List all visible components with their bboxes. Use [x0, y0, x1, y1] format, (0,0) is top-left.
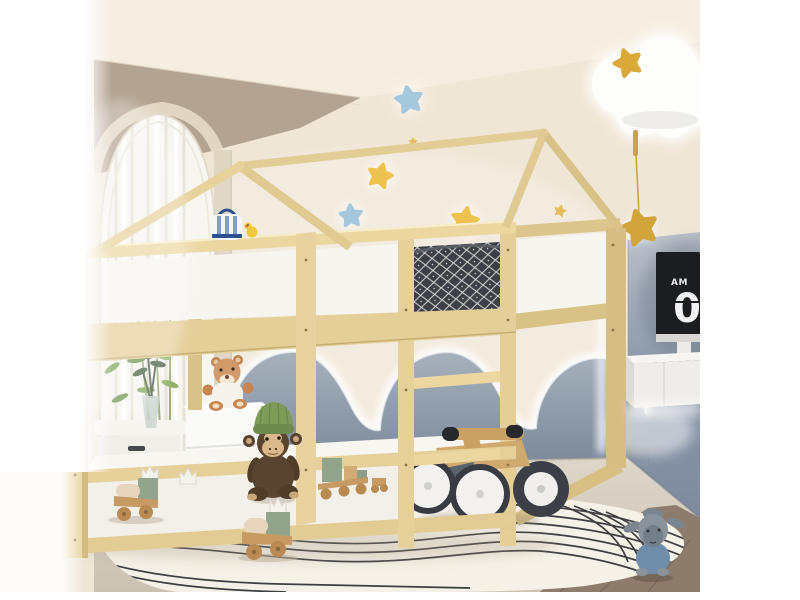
bike-grip-left — [442, 427, 459, 441]
truck-cab — [138, 478, 158, 500]
kids-room-photo: AM 0 — [0, 0, 700, 592]
flip-clock-split — [670, 301, 700, 303]
train-green-block — [322, 458, 342, 482]
clock-digit: 0 — [673, 286, 700, 332]
truck2-cab — [266, 512, 290, 536]
dark-bedding — [414, 242, 500, 313]
guardrail-panel-2 — [316, 244, 398, 315]
product-photo-canvas: AM 0 — [0, 0, 800, 600]
shelf-side — [626, 356, 634, 408]
lamb-face — [643, 525, 663, 547]
bench-handle — [128, 446, 145, 451]
far-right-post — [606, 228, 626, 468]
room-scene: AM 0 — [0, 0, 700, 592]
center-post — [296, 232, 316, 526]
shelf-underglow — [630, 404, 700, 414]
toy-bag — [212, 210, 242, 240]
shelf-front — [634, 360, 700, 408]
cloud-underside — [622, 111, 698, 129]
gable-end-panel — [518, 232, 610, 314]
truck-roll — [116, 484, 140, 498]
pendant-rod — [633, 130, 638, 156]
beanie-brim — [253, 424, 294, 434]
monitor-bezel — [656, 334, 700, 342]
truck2-roll — [244, 518, 268, 534]
bike-grip-right — [506, 425, 523, 438]
